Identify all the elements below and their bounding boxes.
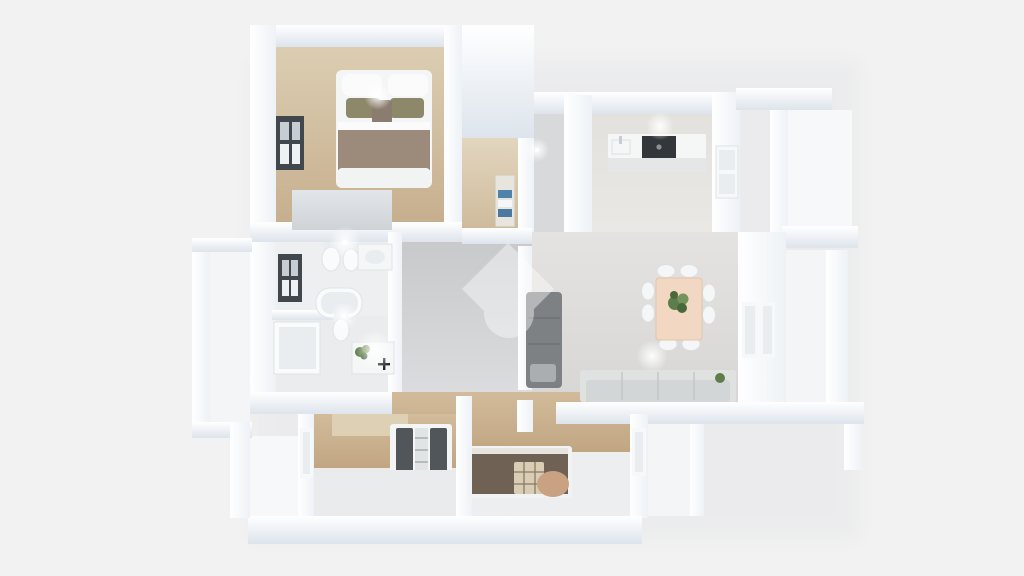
wall-hall-north [462, 228, 532, 244]
lamp-dot [343, 240, 347, 244]
bed-foot-sheet [338, 168, 430, 188]
window-pane [292, 144, 300, 164]
stove-knob [656, 144, 661, 149]
wall-terrace-inner [770, 110, 788, 234]
window-pane [280, 144, 289, 164]
bathroom-window-frame [278, 254, 302, 302]
bedroom1-window [276, 116, 304, 170]
light-glow-living [636, 340, 668, 372]
window-pane [719, 150, 735, 170]
wall-south-long [556, 402, 864, 424]
wall-bedroom4-door-jamb [517, 400, 533, 432]
wardrobe [292, 190, 392, 230]
bedroom3-bed [390, 424, 452, 478]
terrace-floor [788, 110, 852, 228]
bed-sheet-fold [338, 122, 430, 131]
bed3-foot-sheet [390, 470, 452, 478]
window-pane [282, 260, 289, 276]
light-glow-vanity [355, 330, 395, 370]
floorplan-3d-render [0, 0, 1024, 576]
wall-bottom-left-balcony-outer [230, 422, 250, 518]
bed3-pillow-dark [430, 428, 447, 473]
kitchen-counter-group [608, 134, 706, 172]
dining-chair [680, 265, 698, 278]
bottom-right-balcony-floor [648, 424, 690, 516]
closet-ladder-shelf [496, 176, 514, 226]
bed-blanket [338, 130, 430, 170]
window-pane [291, 260, 298, 276]
bed3-pillow-dark [396, 428, 413, 473]
bottom-left-balcony-floor [250, 436, 298, 518]
wall-far-right-stub [844, 424, 862, 470]
wall-bottom-right-balcony-outer [690, 424, 704, 516]
wall-right-balcony-outer [826, 250, 848, 410]
sofa-pillow [530, 364, 556, 382]
watermark-circle [484, 288, 534, 338]
window-pane [280, 122, 289, 140]
accent-pillow-olive [390, 98, 424, 118]
window-pane [635, 432, 643, 472]
towel-white [498, 200, 512, 207]
bedroom4-window [632, 428, 646, 476]
towel-blue [498, 209, 512, 217]
wall-left-balcony-outer [192, 250, 210, 436]
plant-leaf [670, 291, 678, 299]
dining-chair [703, 284, 716, 302]
bedroom3-window [300, 428, 313, 478]
wall-terrace-north [736, 88, 832, 110]
towel-blue [498, 190, 512, 198]
kitchen-counter-front [608, 158, 706, 172]
plant-leaf [677, 303, 687, 313]
tan-cushion [537, 471, 569, 497]
window-pane [745, 306, 755, 354]
floorplan-render-stage [0, 0, 1024, 576]
window-pane [763, 306, 772, 354]
right-balcony-floor [786, 250, 828, 410]
wall-bedroom1-north [250, 25, 464, 47]
window-pane [292, 122, 300, 140]
light-glow-kitchen [646, 112, 674, 140]
window-pane [291, 280, 298, 296]
lamp-dot [535, 148, 539, 152]
daybed-top-edge [472, 448, 568, 455]
bathroom-window [278, 254, 302, 302]
window-pane [303, 432, 310, 474]
dining-chair [642, 304, 655, 322]
lamp-dot [342, 314, 346, 318]
bed-pillow [388, 74, 428, 96]
wall-mass-above-closet [462, 25, 534, 138]
kitchen-faucet [619, 136, 622, 144]
wall-bedroom3-north [250, 392, 392, 414]
entry-hall-floor [532, 112, 564, 232]
dining-chair [703, 306, 716, 324]
sofa-end-plant [715, 373, 725, 383]
plant-leaf [678, 294, 689, 305]
left-balcony-floor [210, 250, 250, 422]
light-sofa [580, 370, 736, 402]
dining-chair [642, 282, 655, 300]
daybed [468, 446, 572, 498]
wall-left-balcony-top-cap [192, 238, 252, 252]
wall-bedroom1-east [444, 25, 462, 242]
wall-bottom-south [248, 516, 642, 544]
vanity-basin [365, 250, 385, 264]
dining-chair [657, 265, 675, 278]
window-pane [719, 174, 735, 194]
bathtub2-inner [279, 327, 316, 369]
wall-hall-kitchen-divider [564, 95, 592, 232]
light-glow-bedroom1 [364, 82, 392, 110]
window-pane [282, 280, 289, 296]
wall-terrace-south [782, 226, 858, 248]
bedroom4-furniture [468, 446, 572, 498]
kitchen-east-window [716, 146, 738, 198]
wall-bedroom1-west [250, 25, 276, 242]
